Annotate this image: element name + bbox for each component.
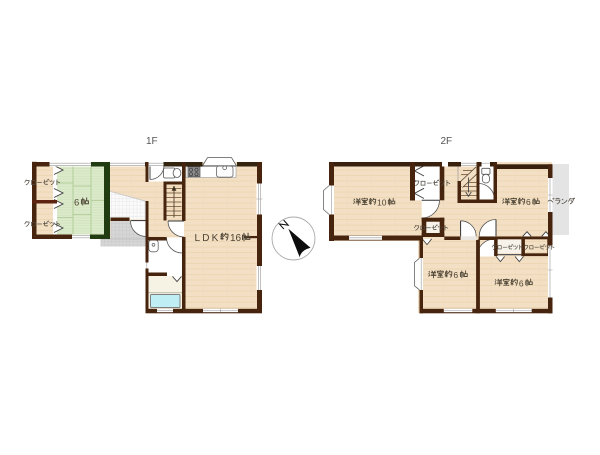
svg-text:6: 6 bbox=[74, 198, 79, 209]
svg-text:2F: 2F bbox=[441, 136, 453, 147]
svg-text:6: 6 bbox=[519, 278, 524, 288]
svg-text:10: 10 bbox=[377, 197, 387, 207]
svg-text:6: 6 bbox=[526, 197, 531, 207]
svg-text:6: 6 bbox=[453, 270, 458, 280]
svg-text:1F: 1F bbox=[146, 136, 158, 147]
svg-text:LDK: LDK bbox=[195, 233, 221, 244]
svg-text:16: 16 bbox=[230, 233, 242, 244]
